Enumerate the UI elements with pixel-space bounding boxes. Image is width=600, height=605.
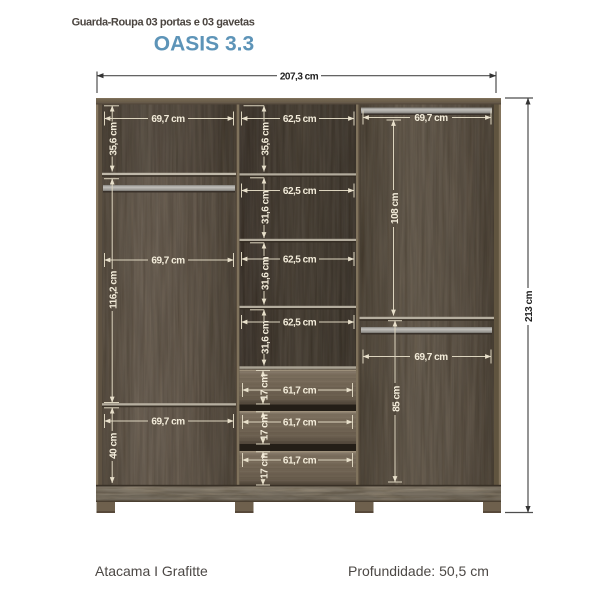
svg-text:69,7 cm: 69,7 cm (414, 352, 448, 363)
svg-text:69,7 cm: 69,7 cm (151, 256, 185, 267)
svg-text:62,5 cm: 62,5 cm (283, 255, 317, 266)
svg-text:61,7 cm: 61,7 cm (283, 418, 317, 429)
svg-text:Atacama I Grafitte: Atacama I Grafitte (95, 563, 208, 579)
svg-text:35,6 cm: 35,6 cm (260, 122, 271, 156)
svg-text:69,7 cm: 69,7 cm (414, 113, 448, 124)
svg-text:Profundidade: 50,5 cm: Profundidade: 50,5 cm (348, 563, 489, 579)
svg-text:61,7 cm: 61,7 cm (283, 386, 317, 397)
svg-text:31,6 cm: 31,6 cm (260, 320, 271, 354)
svg-text:85 cm: 85 cm (391, 385, 402, 411)
svg-text:17 cm: 17 cm (259, 414, 270, 440)
svg-text:62,5 cm: 62,5 cm (283, 114, 317, 125)
svg-text:17 cm: 17 cm (259, 452, 270, 478)
svg-text:35,6 cm: 35,6 cm (109, 122, 120, 156)
svg-text:116,2 cm: 116,2 cm (109, 271, 120, 309)
svg-text:31,6 cm: 31,6 cm (260, 256, 271, 290)
svg-text:69,7 cm: 69,7 cm (151, 114, 185, 125)
svg-text:62,5 cm: 62,5 cm (283, 318, 317, 329)
svg-text:69,7 cm: 69,7 cm (151, 417, 185, 428)
svg-text:40 cm: 40 cm (109, 432, 120, 458)
svg-text:17 cm: 17 cm (259, 374, 270, 400)
svg-text:OASIS 3.3: OASIS 3.3 (154, 33, 254, 56)
svg-text:108 cm: 108 cm (390, 192, 401, 224)
svg-text:Guarda-Roupa 03 portas e 03 ga: Guarda-Roupa 03 portas e 03 gavetas (72, 17, 255, 29)
svg-text:61,7 cm: 61,7 cm (283, 456, 317, 467)
svg-text:213 cm: 213 cm (524, 290, 535, 322)
svg-text:31,6 cm: 31,6 cm (260, 190, 271, 224)
svg-text:207,3 cm: 207,3 cm (280, 71, 319, 82)
svg-text:62,5 cm: 62,5 cm (283, 186, 317, 197)
